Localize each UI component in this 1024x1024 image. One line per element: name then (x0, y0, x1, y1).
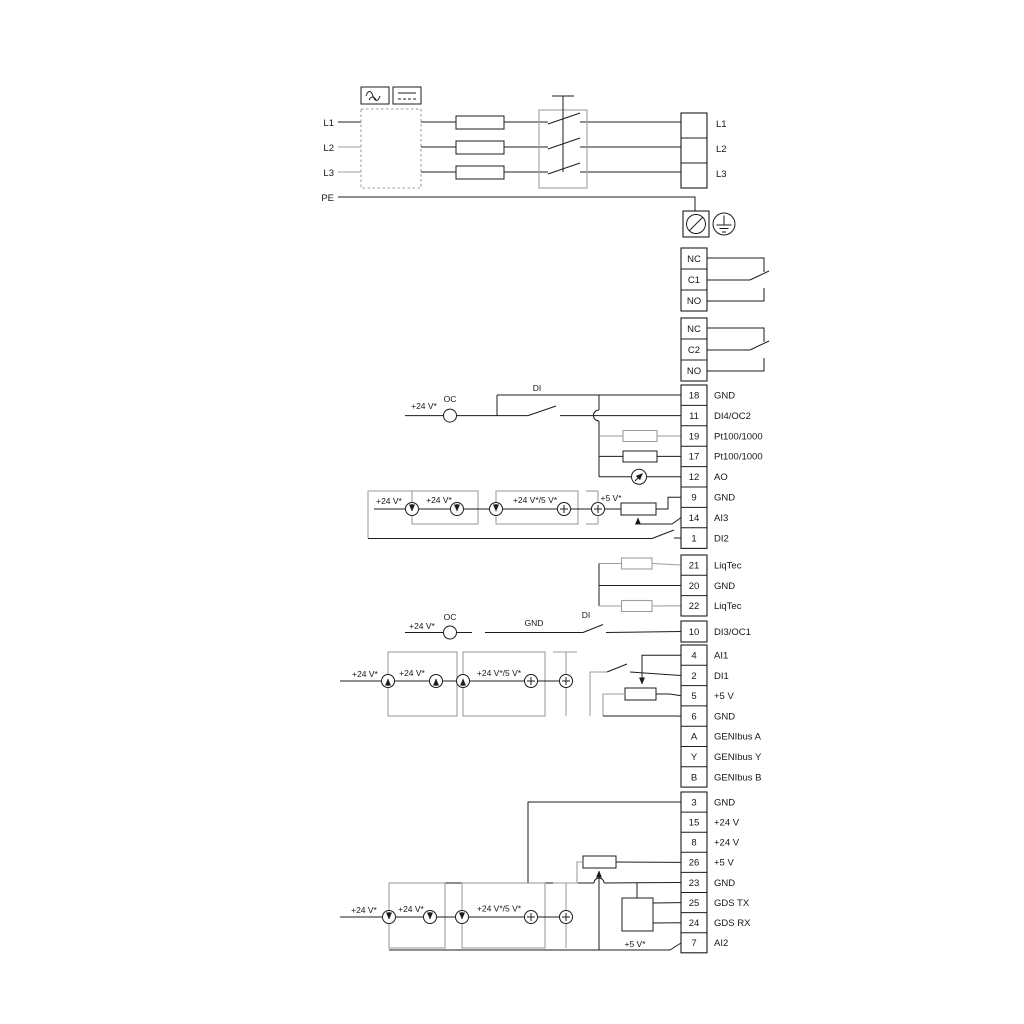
terminal-label: AI2 (714, 938, 728, 949)
di-label: DI (582, 610, 591, 620)
v24-label: +24 V* (351, 905, 377, 915)
terminal-label: +5 V (714, 691, 734, 702)
wiring-diagram: L1 L2 L3 PE (0, 0, 1024, 1024)
terminal-number: 15 (689, 818, 700, 829)
mains-output-block: L1 L2 L3 (681, 113, 727, 188)
v24or5-label: +24 V*/5 V* (513, 495, 558, 505)
terminal-label: Pt100/1000 (714, 452, 763, 463)
input-label-pe: PE (321, 193, 334, 204)
di3-switch (583, 625, 603, 633)
terminal-number: 20 (689, 581, 700, 592)
terminal-number: Y (691, 752, 698, 763)
terminal-label: DI2 (714, 533, 729, 544)
terminal-label: GND (714, 878, 735, 889)
terminal-number: 18 (689, 391, 700, 402)
pe-terminal (683, 211, 709, 237)
terminal-number: A (691, 732, 698, 743)
terminal-number: 14 (689, 513, 700, 524)
v24-label: +24 V* (376, 496, 402, 506)
liqtec-sensor-21 (622, 558, 653, 569)
io-strip-3: +5 V* +24 V* +24 V* +24 V*/5 V* (340, 792, 751, 953)
relay1-c1: C1 (688, 275, 700, 286)
v24-label: +24 V* (398, 904, 424, 914)
terminal-number: 12 (689, 472, 700, 483)
v5-label: +5 V* (624, 939, 646, 949)
terminal-label: +5 V (714, 858, 734, 869)
terminal-number: 19 (689, 431, 700, 442)
terminal-label: LiqTec (714, 561, 742, 572)
terminal-number: 11 (689, 411, 699, 422)
io3-wiring: +5 V* +24 V* +24 V* +24 V*/5 V* (340, 802, 681, 950)
terminal-number: 1 (691, 533, 696, 544)
terminal-label: GENIbus B (714, 772, 762, 783)
earth-ground-icon (713, 213, 735, 235)
output-label-l1: L1 (716, 119, 727, 130)
relay2-section: NC C2 NO (681, 318, 769, 381)
io-strip-2: +24 V* +24 V* +24 V*/5 V* (340, 645, 762, 787)
terminal-label: AI1 (714, 651, 728, 662)
terminal-label: DI3/OC1 (714, 627, 751, 638)
oc-output-icon (444, 409, 457, 422)
terminal-number: 5 (691, 691, 696, 702)
v24-label: +24 V* (411, 401, 437, 411)
ac-symbol-icon (361, 87, 389, 104)
output-label-l2: L2 (716, 144, 727, 155)
converter-box (361, 109, 421, 188)
oc-label: OC (444, 612, 457, 622)
terminal-label: GDS TX (714, 898, 750, 909)
terminal-label: GENIbus A (714, 732, 762, 743)
terminal-number: 7 (691, 938, 696, 949)
terminal-label: GND (714, 581, 735, 592)
pt100-resistor-17 (623, 451, 657, 462)
liqtec-sensor-22 (622, 601, 653, 612)
terminal-number: 10 (689, 627, 700, 638)
io1-wiring: +24 V* OC DI (368, 383, 681, 539)
terminal-number: 22 (689, 601, 700, 612)
fuse-l2 (456, 141, 504, 154)
relay2-nc: NC (687, 324, 701, 335)
terminal-label: GENIbus Y (714, 752, 762, 763)
io-strip-1: +24 V* OC DI (368, 383, 763, 548)
terminal-number: 24 (689, 918, 700, 929)
di-label: DI (533, 383, 542, 393)
terminal-number: 4 (691, 651, 696, 662)
dc-symbol-icon (393, 87, 421, 104)
terminal-label: AI3 (714, 513, 728, 524)
pt100-resistor-19 (623, 431, 657, 442)
terminal-number: 17 (689, 452, 700, 463)
source-group-box (388, 652, 457, 716)
terminal-label: Pt100/1000 (714, 431, 763, 442)
terminal-number: 3 (691, 797, 696, 808)
mains-input-section: L1 L2 L3 PE (321, 87, 735, 237)
terminal-number: 21 (689, 561, 700, 572)
terminal-label: GND (714, 711, 735, 722)
terminal-number: B (691, 772, 697, 783)
terminal-label: GND (714, 493, 735, 504)
terminal-number: 8 (691, 838, 696, 849)
potentiometer (583, 856, 616, 868)
input-label-l1: L1 (323, 118, 334, 129)
relay2-c2: C2 (688, 345, 700, 356)
terminal-row: 10DI3/OC1 (689, 627, 751, 638)
terminal-label: AO (714, 472, 728, 483)
input-label-l3: L3 (323, 168, 334, 179)
potentiometer (621, 503, 656, 515)
fuse-l1 (456, 116, 504, 129)
v24or5-label: +24 V*/5 V* (477, 668, 522, 678)
relay1-nc: NC (687, 254, 701, 265)
terminal-label: GND (714, 391, 735, 402)
terminal-row: 21LiqTec 20GND 22LiqTec (689, 561, 742, 613)
gds-sensor-box (622, 898, 653, 931)
di1-switch (607, 664, 627, 672)
relay1-section: NC C1 NO (681, 248, 769, 311)
v24or5-label: +24 V*/5 V* (477, 904, 522, 914)
terminal-label: +24 V (714, 818, 740, 829)
terminal-label: +24 V (714, 838, 740, 849)
v24-label: +24 V* (352, 669, 378, 679)
oc-output-icon (444, 626, 457, 639)
v24-label: +24 V* (399, 668, 425, 678)
gnd-label: GND (525, 618, 544, 628)
output-label-l3: L3 (716, 169, 727, 180)
terminal-number: 6 (691, 711, 696, 722)
io2-wiring: +24 V* +24 V* +24 V*/5 V* (340, 652, 681, 716)
liqtec-strip: 21LiqTec 20GND 22LiqTec (599, 555, 742, 616)
v24-label: +24 V* (426, 495, 452, 505)
input-label-l2: L2 (323, 143, 334, 154)
terminal-number: 2 (691, 671, 696, 682)
di4-switch (528, 406, 556, 416)
v24-label: +24 V* (409, 621, 435, 631)
terminal-label: LiqTec (714, 601, 742, 612)
terminal-number: 25 (689, 898, 700, 909)
main-switch (539, 96, 587, 188)
pe-wire (338, 197, 695, 211)
fuse-l3 (456, 166, 504, 179)
v5-label: +5 V* (600, 493, 622, 503)
terminal-number: 23 (689, 878, 700, 889)
current-source-icon (383, 911, 469, 924)
terminal-number: 26 (689, 858, 700, 869)
terminal-label: GND (714, 797, 735, 808)
terminal-label: DI1 (714, 671, 729, 682)
oc-label: OC (444, 394, 457, 404)
potentiometer (625, 688, 656, 700)
relay2-no: NO (687, 366, 701, 377)
terminal-number: 9 (691, 493, 696, 504)
terminal-label: DI4/OC2 (714, 411, 751, 422)
terminal-label: GDS RX (714, 918, 751, 929)
di2-switch (652, 530, 674, 539)
relay1-no: NO (687, 296, 701, 307)
